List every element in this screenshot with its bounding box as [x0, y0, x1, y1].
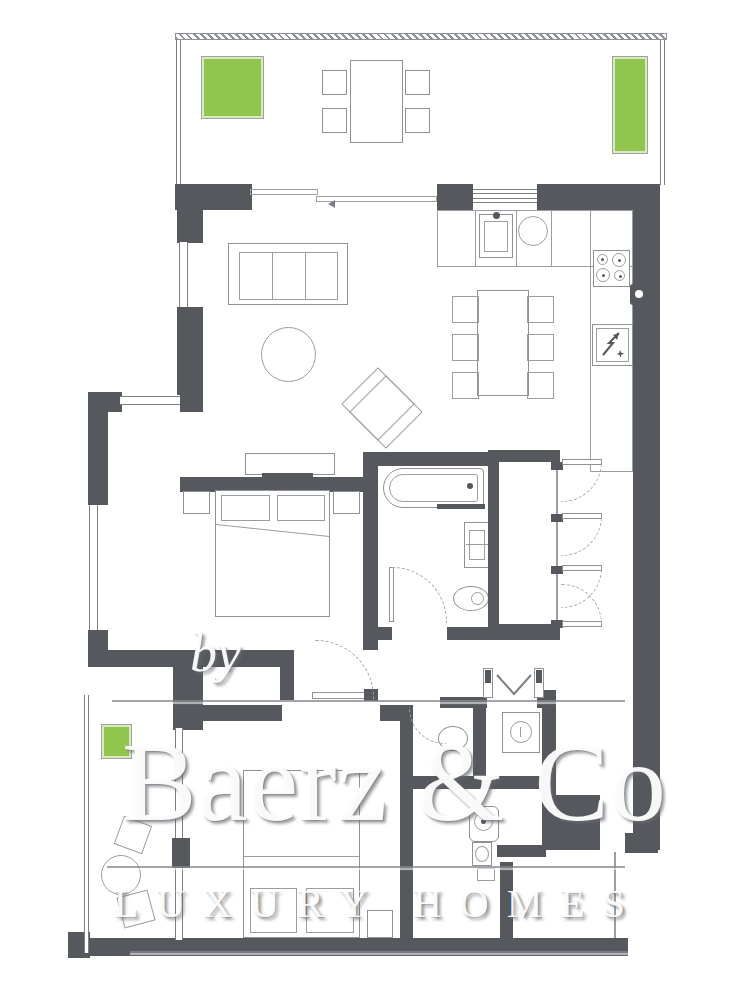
toilet-flush [471, 592, 484, 605]
watermark-prefix: by [190, 622, 241, 684]
small-washbasin-bowl [475, 846, 489, 862]
burner-dot [602, 274, 605, 277]
wall-left-outer [177, 307, 203, 395]
door-slide-arrow-icon [328, 200, 335, 208]
faucet-icon [493, 212, 500, 219]
wall [437, 184, 473, 210]
nightstand [183, 491, 210, 514]
sofa-cushion-divider [272, 252, 273, 300]
terrace-chair [405, 70, 430, 95]
wall-fixture-knob [635, 290, 643, 298]
sofa-seat [239, 252, 338, 300]
entry-door-icon [495, 674, 533, 696]
wall-bathroom-top [363, 452, 490, 466]
wall-left-outer [177, 205, 203, 243]
dining-chair [452, 372, 479, 399]
terrace-railing-right [660, 40, 665, 185]
washbasin-bowl [469, 530, 485, 560]
dining-table [477, 290, 529, 396]
bathtub-inner [389, 474, 478, 502]
wall [537, 184, 660, 210]
sliding-door-panel [250, 189, 318, 195]
washbasin-line [466, 544, 488, 545]
counter-divider [475, 210, 476, 267]
watermark-rule [107, 866, 625, 868]
sofa-cushion-divider [305, 252, 306, 300]
balcony-railing [84, 695, 89, 953]
bathtub-faucet-icon [467, 483, 473, 489]
dining-chair [452, 334, 479, 361]
terrace-chair [322, 108, 347, 133]
coffee-table [261, 327, 316, 382]
wardrobe-face [556, 462, 558, 624]
burner-dot [618, 259, 621, 262]
burner-dot [601, 258, 604, 261]
kitchen-sink-basin [484, 221, 508, 252]
floor-plan: by Baerz & Co LUXURY HOMES [0, 0, 747, 1000]
counter-divider [551, 210, 552, 267]
entry-door-post-cap [485, 670, 491, 683]
living-room-window [179, 242, 188, 308]
terrace-chair [322, 70, 347, 95]
burner-dot [619, 275, 622, 278]
wall [280, 650, 294, 700]
watermark-rule [130, 951, 628, 953]
dining-chair [527, 372, 554, 399]
pillow [221, 495, 270, 521]
terrace-chair [405, 108, 430, 133]
wall-bottom-outer [80, 938, 628, 956]
watermark-rule [112, 700, 625, 702]
wall-bathroom-left [363, 452, 378, 650]
wall [88, 392, 122, 412]
terrace-planter-left [202, 57, 263, 118]
window [120, 396, 180, 405]
terrace-planter-right [613, 57, 647, 153]
terrace-railing-left [176, 40, 181, 185]
wall [180, 392, 203, 412]
wall-wardrobe [488, 450, 499, 636]
wall-wardrobe [488, 624, 560, 636]
kitchen-window [473, 189, 537, 194]
freezer-icon [599, 331, 627, 359]
dining-chair [527, 296, 554, 323]
sideboard [245, 453, 335, 475]
bath-shelf [437, 504, 485, 509]
wall [88, 412, 108, 505]
watermark-tagline: LUXURY HOMES [114, 880, 643, 927]
dining-chair [527, 334, 554, 361]
pillow [277, 495, 325, 521]
terrace-railing-top [175, 33, 667, 40]
entry-door-post-cap [536, 670, 542, 683]
counter-divider [516, 210, 517, 267]
outdoor-dining-table [350, 60, 403, 143]
kitchen-window [473, 198, 537, 203]
bed-2-blanket-line [244, 856, 359, 857]
bedroom-window [89, 505, 98, 630]
dining-chair [452, 296, 479, 323]
watermark-brand: Baerz & Co [122, 718, 667, 847]
nightstand [333, 491, 360, 514]
round-basin [518, 216, 548, 246]
wall-bathroom-bottom [363, 627, 392, 640]
